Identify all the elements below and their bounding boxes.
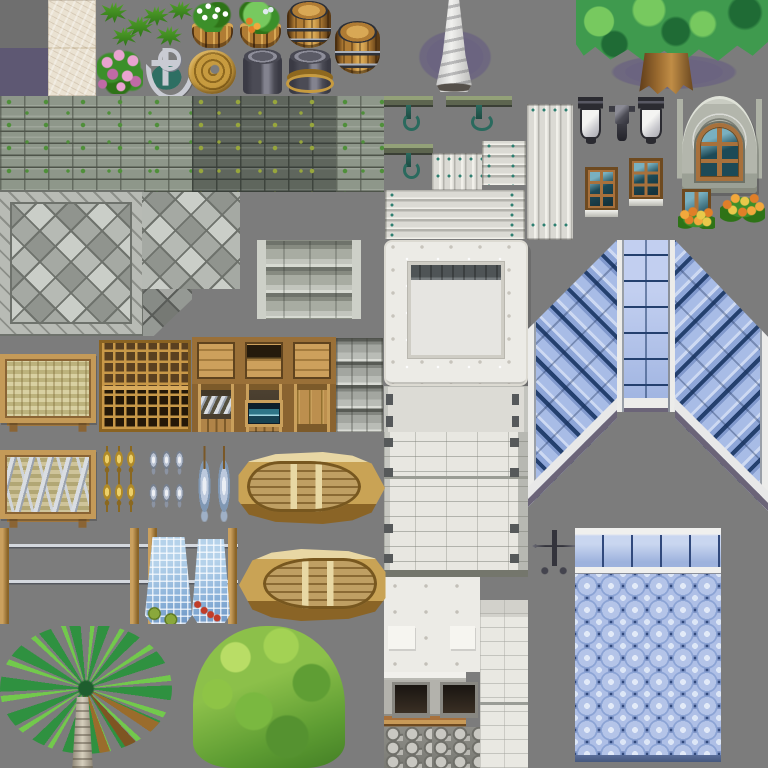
plank-stack-vertical-short	[432, 153, 482, 191]
stone-arch-window	[677, 96, 762, 193]
fish-market-table	[0, 450, 96, 528]
crate-lid	[192, 337, 240, 384]
crate-door	[288, 384, 336, 432]
crate-aquarium	[240, 384, 288, 432]
stucco-blocks	[384, 577, 480, 672]
roof-ridge	[617, 240, 675, 412]
rope-coil	[188, 50, 236, 94]
plank-stack-horizontal-small	[482, 141, 526, 185]
plank-stack-horizontal-wide	[385, 190, 525, 239]
wooden-barrel	[335, 22, 380, 74]
tileset-canvas	[0, 0, 768, 768]
woven-mat-table	[0, 354, 96, 432]
roof-slope-right	[672, 240, 768, 520]
paved-plaza-bordered	[0, 192, 142, 334]
marble-tile	[48, 0, 96, 96]
grass-tuft	[143, 6, 169, 26]
white-building-front	[384, 240, 528, 386]
iron-lantern	[578, 97, 603, 144]
hanging-fish-pair	[195, 446, 234, 522]
fishing-net-green-floats	[145, 537, 192, 624]
mossy-stone-wall-light	[0, 96, 192, 192]
paved-floor-corner	[143, 289, 192, 336]
bucket-with-rope	[289, 50, 331, 94]
rowboat	[239, 549, 387, 621]
stone-steps	[257, 240, 361, 319]
anchor	[142, 48, 189, 95]
bush-planter	[237, 2, 284, 48]
stone-block-stack	[336, 338, 383, 432]
riveted-wall-section	[384, 386, 528, 432]
iron-lantern	[638, 97, 664, 144]
weathervane-rooster	[531, 525, 577, 577]
hanging-fish-bundle	[147, 446, 186, 512]
grass-tuft	[112, 27, 137, 46]
flower-barrel-planter	[189, 2, 236, 48]
palm-tree	[0, 626, 172, 768]
grass-tuft	[156, 26, 182, 46]
window-flower-box	[678, 189, 715, 229]
hanging-beam	[446, 96, 512, 132]
metal-bucket	[243, 50, 282, 94]
six-pane-window	[585, 167, 618, 211]
white-brick-wall	[384, 432, 528, 577]
wooden-barrel	[287, 2, 331, 48]
hanging-beam	[384, 144, 433, 180]
stone-oven-partial	[432, 672, 480, 768]
plain-dark-tile	[0, 0, 48, 48]
fishing-net-red-floats	[192, 539, 230, 623]
large-tree	[576, 0, 768, 96]
orange-flower-bush	[720, 191, 765, 225]
roof-slope-left	[528, 240, 622, 520]
mossy-stone-wall-dark	[192, 96, 336, 192]
round-bush-tree	[193, 626, 345, 768]
grass-tuft	[100, 2, 127, 23]
six-pane-window	[629, 158, 663, 200]
plain-purple-tile	[0, 48, 48, 96]
white-wall-column	[480, 600, 528, 768]
crate-lid	[288, 337, 336, 384]
mossy-stone-wall-light	[336, 96, 384, 192]
stone-oven	[384, 672, 432, 768]
dried-fish-skewers	[101, 446, 137, 512]
scalloped-roof	[575, 528, 721, 762]
lattice-rack	[99, 340, 191, 432]
pink-flowers	[97, 49, 143, 94]
hanging-beam	[384, 96, 433, 132]
lamp-bracket	[606, 102, 638, 144]
paved-floor	[142, 192, 240, 289]
plank-stack-vertical-tall	[527, 104, 573, 240]
crate-shelf	[240, 337, 288, 384]
crate-with-fish	[192, 384, 240, 432]
rowboat	[237, 452, 385, 524]
